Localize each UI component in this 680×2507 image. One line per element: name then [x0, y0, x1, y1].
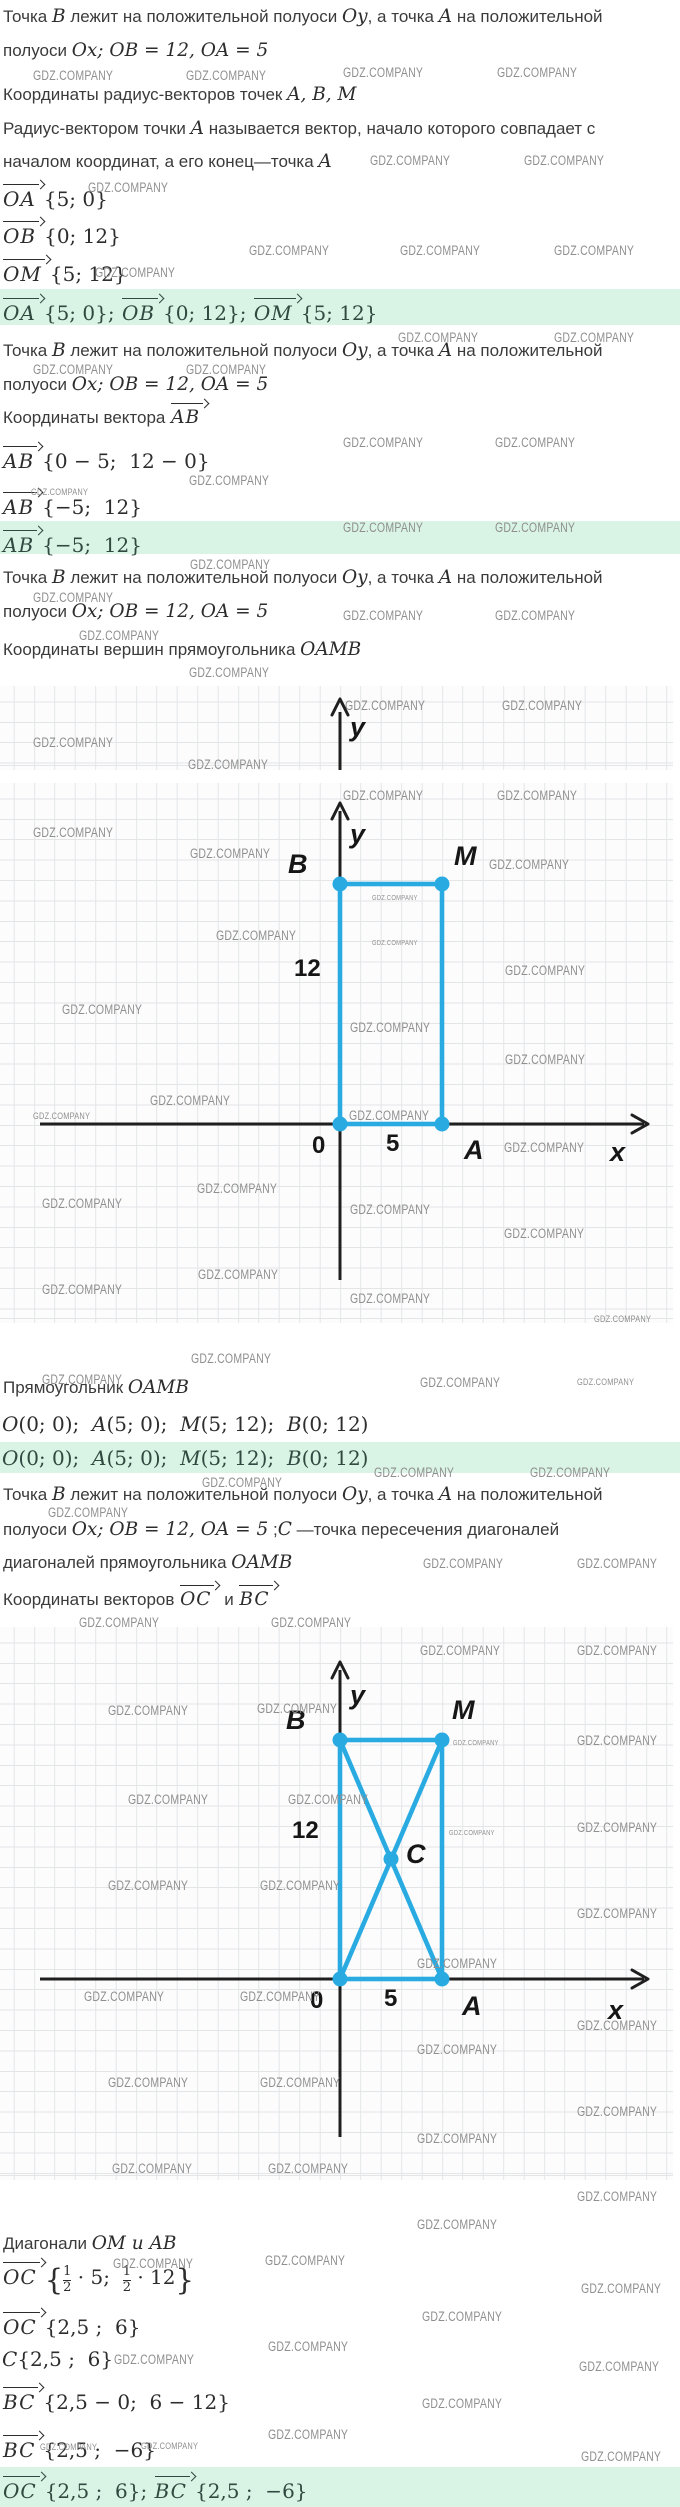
- math-segment: {0; 12};: [163, 301, 253, 325]
- watermark: GDZ.COMPANY: [577, 1733, 657, 1748]
- math-segment: A: [439, 1484, 452, 1505]
- section-heading-vector-ab: Координаты вектора AB: [3, 397, 208, 431]
- vector-arrow: AB: [2, 440, 42, 474]
- point-dot-b: [333, 877, 348, 892]
- point-label-b: B: [288, 849, 308, 880]
- point-dot-a: [435, 1972, 450, 1987]
- math-segment: M: [180, 1412, 200, 1436]
- math-segment: AB: [170, 407, 208, 428]
- vector-arrow: OC: [2, 2470, 45, 2504]
- watermark: GDZ.COMPANY: [504, 1226, 584, 1241]
- watermark: GDZ.COMPANY: [268, 2161, 348, 2176]
- watermark: GDZ.COMPANY: [141, 2441, 198, 2452]
- watermark: GDZ.COMPANY: [268, 2427, 348, 2442]
- math-segment: B: [52, 340, 66, 361]
- vector-arrow: BC: [154, 2470, 195, 2504]
- watermark: GDZ.COMPANY: [265, 2253, 345, 2268]
- text-segment: Радиус-вектором точки: [3, 119, 191, 138]
- denominator: 2: [123, 2280, 131, 2296]
- vector-arrow: OM: [2, 253, 50, 287]
- watermark: GDZ.COMPANY: [422, 2309, 502, 2324]
- watermark: GDZ.COMPANY: [505, 963, 585, 978]
- watermark: GDZ.COMPANY: [495, 435, 575, 450]
- math-segment: Ox; OB = 12, OA = 5: [72, 374, 269, 395]
- math-segment: Oy: [342, 6, 368, 27]
- watermark: GDZ.COMPANY: [577, 1820, 657, 1835]
- intro-line-1: Точка B лежит на положительной полуоси O…: [3, 1484, 603, 1506]
- text-segment: ;: [268, 1520, 277, 1539]
- watermark: GDZ.COMPANY: [453, 1738, 499, 1747]
- text-segment: Координаты вектора: [3, 408, 170, 427]
- watermark: GDZ.COMPANY: [240, 1989, 320, 2004]
- point-label-a: A: [464, 1135, 484, 1166]
- watermark: GDZ.COMPANY: [343, 65, 423, 80]
- text-segment: на положительной: [452, 568, 602, 587]
- math-segment: A, B, M: [287, 84, 356, 105]
- section-heading-rectangle-vertices: Координаты вершин прямоугольника OAMB: [3, 639, 361, 661]
- watermark: GDZ.COMPANY: [579, 2359, 659, 2374]
- watermark: GDZ.COMPANY: [417, 1956, 497, 1971]
- formula-oc-2: OC{2,5 ; 6}: [2, 2306, 141, 2340]
- formula-vertex-coords: O(0; 0); A(5; 0); M(5; 12); B(0; 12): [2, 1411, 368, 1437]
- math-segment: B: [52, 6, 66, 27]
- watermark: GDZ.COMPANY: [449, 1828, 495, 1837]
- watermark: GDZ.COMPANY: [33, 362, 113, 377]
- watermark: GDZ.COMPANY: [530, 1465, 610, 1480]
- watermark: GDZ.COMPANY: [577, 1906, 657, 1921]
- text-segment: называется вектор, начало которого совпа…: [204, 119, 595, 138]
- math-segment: (0; 12): [302, 1412, 369, 1436]
- watermark: GDZ.COMPANY: [343, 520, 423, 535]
- watermark: GDZ.COMPANY: [577, 1377, 634, 1388]
- text-segment: Точка: [3, 7, 52, 26]
- answer-formula: OC{2,5 ; 6}; BC{2,5 ; −6}: [0, 2467, 680, 2507]
- text-segment: Координаты радиус-векторов точек: [3, 85, 287, 104]
- watermark: GDZ.COMPANY: [108, 1703, 188, 1718]
- watermark: GDZ.COMPANY: [257, 1701, 337, 1716]
- math-segment: A: [92, 1446, 106, 1470]
- watermark: GDZ.COMPANY: [189, 665, 269, 680]
- solution-page: Точка B лежит на положительной полуоси O…: [0, 0, 680, 2507]
- watermark: GDZ.COMPANY: [260, 1878, 340, 1893]
- vector-arrow: BC: [2, 2381, 43, 2415]
- intro-line-1: Точка B лежит на положительной полуоси O…: [3, 567, 603, 589]
- vector-arrow: OC: [179, 1579, 219, 1613]
- definition-line-2: началом координат, а его конец—точка A: [3, 151, 332, 173]
- watermark: GDZ.COMPANY: [504, 1140, 584, 1155]
- answer-formula: OA{5; 0}; OB{0; 12}; OM{5; 12}: [0, 289, 680, 330]
- watermark: GDZ.COMPANY: [268, 2339, 348, 2354]
- intro-line-2: полуоси Ox; OB = 12, OA = 5: [3, 374, 268, 396]
- text-segment: Точка: [3, 568, 52, 587]
- intro-line-2: полуоси Ox; OB = 12, OA = 5: [3, 40, 268, 62]
- answer-highlight-4: OC{2,5 ; 6}; BC{2,5 ; −6}: [0, 2467, 680, 2507]
- diagonals-caption: Диагонали OM и AB: [3, 2233, 176, 2255]
- text-segment: полуоси: [3, 375, 72, 394]
- watermark: GDZ.COMPANY: [417, 2042, 497, 2057]
- watermark: GDZ.COMPANY: [350, 1020, 430, 1035]
- point-dot-c: [384, 1852, 399, 1867]
- watermark: GDZ.COMPANY: [191, 1351, 271, 1366]
- watermark: GDZ.COMPANY: [202, 1475, 282, 1490]
- math-segment: OAMB: [128, 1377, 189, 1398]
- watermark: GDZ.COMPANY: [108, 2075, 188, 2090]
- math-segment: {0; 12}: [44, 224, 121, 248]
- math-segment: {2,5 ; 6};: [45, 2479, 154, 2503]
- watermark: GDZ.COMPANY: [288, 1792, 368, 1807]
- watermark: GDZ.COMPANY: [370, 153, 450, 168]
- watermark: GDZ.COMPANY: [524, 153, 604, 168]
- watermark: GDZ.COMPANY: [372, 893, 418, 902]
- text-segment: полуоси: [3, 41, 72, 60]
- axis-label-x: x: [610, 1137, 625, 1168]
- vector-arrow: OA: [2, 178, 44, 212]
- math-segment: (0; 0);: [18, 1412, 92, 1436]
- watermark: GDZ.COMPANY: [198, 1267, 278, 1282]
- watermark: GDZ.COMPANY: [495, 520, 575, 535]
- watermark: GDZ.COMPANY: [577, 2189, 657, 2204]
- watermark: GDZ.COMPANY: [190, 557, 270, 572]
- answer-highlight-2: AB{−5; 12}: [0, 521, 680, 554]
- watermark: GDZ.COMPANY: [150, 1093, 230, 1108]
- math-segment: O: [2, 1412, 18, 1436]
- watermark: GDZ.COMPANY: [113, 2256, 193, 2271]
- definition-line-1: Радиус-вектором точки A называется векто…: [3, 118, 595, 140]
- vector-arrow: OB: [2, 215, 44, 249]
- watermark: GDZ.COMPANY: [422, 2396, 502, 2411]
- formula-ob: OB{0; 12}: [2, 215, 121, 249]
- vector-arrow: OA: [2, 292, 44, 326]
- watermark: GDZ.COMPANY: [489, 857, 569, 872]
- math-segment: (5; 12);: [201, 1412, 287, 1436]
- intro-line-3: диагоналей прямоугольника OAMB: [3, 1552, 292, 1574]
- point-label-c: C: [406, 1839, 426, 1870]
- math-segment: {5; 0};: [44, 301, 121, 325]
- watermark: GDZ.COMPANY: [502, 698, 582, 713]
- watermark: GDZ.COMPANY: [350, 1202, 430, 1217]
- watermark: GDZ.COMPANY: [186, 362, 266, 377]
- rectangle-oamb: [340, 884, 442, 1124]
- math-segment: A: [439, 6, 452, 27]
- math-segment: Ox; OB = 12, OA = 5: [72, 1519, 269, 1540]
- math-segment: BC: [238, 1589, 277, 1610]
- point-label-m: M: [454, 841, 477, 872]
- tick-label-5: 5: [386, 1130, 399, 1158]
- watermark: GDZ.COMPANY: [84, 1989, 164, 2004]
- watermark: GDZ.COMPANY: [42, 1282, 122, 1297]
- watermark: GDZ.COMPANY: [260, 2075, 340, 2090]
- watermark: GDZ.COMPANY: [112, 2161, 192, 2176]
- watermark: GDZ.COMPANY: [62, 1002, 142, 1017]
- text-segment: Точка: [3, 341, 52, 360]
- section-heading-radius-vectors: Координаты радиус-векторов точек A, B, M: [3, 84, 357, 106]
- watermark: GDZ.COMPANY: [42, 1196, 122, 1211]
- watermark: GDZ.COMPANY: [189, 473, 269, 488]
- watermark: GDZ.COMPANY: [420, 1375, 500, 1390]
- watermark: GDZ.COMPANY: [190, 846, 270, 861]
- text-segment: , а точка: [368, 568, 439, 587]
- watermark: GDZ.COMPANY: [186, 68, 266, 83]
- watermark: GDZ.COMPANY: [79, 628, 159, 643]
- vector-arrow: AB: [2, 524, 42, 558]
- text-segment: на положительной: [452, 1485, 602, 1504]
- math-segment: {: [45, 2263, 63, 2297]
- math-segment: (5; 12);: [201, 1446, 287, 1470]
- formula-bc-1: BC{2,5 − 0; 6 − 12}: [2, 2381, 230, 2415]
- point-label-a: A: [462, 1991, 482, 2022]
- watermark: GDZ.COMPANY: [577, 1556, 657, 1571]
- watermark: GDZ.COMPANY: [31, 487, 88, 498]
- watermark: GDZ.COMPANY: [495, 608, 575, 623]
- watermark: GDZ.COMPANY: [343, 608, 423, 623]
- math-segment: A: [191, 118, 204, 139]
- math-segment: A: [92, 1412, 106, 1436]
- watermark: GDZ.COMPANY: [420, 1643, 500, 1658]
- text-segment: , а точка: [368, 1485, 439, 1504]
- watermark: GDZ.COMPANY: [197, 1181, 277, 1196]
- math-segment: {2,5 ; 6}: [17, 2347, 113, 2371]
- watermark: GDZ.COMPANY: [497, 788, 577, 803]
- watermark: GDZ.COMPANY: [374, 1465, 454, 1480]
- watermark: GDZ.COMPANY: [343, 788, 423, 803]
- text-segment: Диагонали: [3, 2234, 92, 2253]
- watermark: GDZ.COMPANY: [188, 757, 268, 772]
- text-segment: —точка пересечения диагоналей: [292, 1520, 559, 1539]
- point-dot-o: [333, 1972, 348, 1987]
- math-segment: (0; 0);: [18, 1446, 92, 1470]
- text-segment: и: [219, 1590, 238, 1609]
- watermark: GDZ.COMPANY: [128, 1792, 208, 1807]
- watermark: GDZ.COMPANY: [417, 2217, 497, 2232]
- section-heading-vectors-oc-bc: Координаты векторов OC и BC: [3, 1579, 278, 1613]
- math-segment: Oy: [342, 567, 368, 588]
- math-segment: C: [278, 1519, 292, 1540]
- math-segment: OM и AB: [92, 2233, 177, 2254]
- math-segment: O: [2, 1446, 18, 1470]
- point-dot-a: [435, 1117, 450, 1132]
- watermark: GDZ.COMPANY: [343, 435, 423, 450]
- text-segment: диагоналей прямоугольника: [3, 1553, 231, 1572]
- math-segment: {2,5 ; −6}: [195, 2479, 308, 2503]
- point-dot-o: [333, 1117, 348, 1132]
- text-segment: Координаты векторов: [3, 1590, 179, 1609]
- text-segment: началом координат, а его конец—точка: [3, 152, 318, 171]
- watermark: GDZ.COMPANY: [79, 1615, 159, 1630]
- vector-arrow: BC: [238, 1579, 277, 1613]
- math-segment: {2,5 − 0; 6 − 12}: [43, 2390, 230, 2414]
- watermark: GDZ.COMPANY: [216, 928, 296, 943]
- watermark: GDZ.COMPANY: [423, 1556, 503, 1571]
- text-segment: , а точка: [368, 7, 439, 26]
- formula-ab-1: AB{0 − 5; 12 − 0}: [2, 440, 210, 474]
- watermark: GDZ.COMPANY: [497, 65, 577, 80]
- watermark: GDZ.COMPANY: [33, 68, 113, 83]
- math-segment: Ox; OB = 12, OA = 5: [72, 40, 269, 61]
- watermark: GDZ.COMPANY: [33, 735, 113, 750]
- math-segment: (0; 12): [302, 1446, 369, 1470]
- text-segment: Точка: [3, 1485, 52, 1504]
- math-segment: {−5; 12}: [42, 495, 142, 519]
- axis-label-y: y: [350, 712, 365, 743]
- answer-formula: AB{−5; 12}: [0, 521, 680, 562]
- math-segment: {2,5 ; 6}: [45, 2315, 141, 2339]
- watermark: GDZ.COMPANY: [114, 2352, 194, 2367]
- math-segment: M: [180, 1446, 200, 1470]
- watermark: GDZ.COMPANY: [372, 938, 418, 947]
- math-segment: C: [2, 2347, 17, 2371]
- intro-line-1: Точка B лежит на положительной полуоси O…: [3, 340, 603, 362]
- point-dot-m: [435, 1733, 450, 1748]
- watermark: GDZ.COMPANY: [581, 2281, 661, 2296]
- math-segment: (5; 0);: [106, 1412, 180, 1436]
- intro-line-2: полуоси Ox; OB = 12, OA = 5 ;C —точка пе…: [3, 1519, 559, 1541]
- watermark: GDZ.COMPANY: [505, 1052, 585, 1067]
- math-segment: {5; 12}: [301, 301, 378, 325]
- origin-label-0: 0: [312, 1132, 325, 1160]
- side-label-12: 12: [294, 955, 321, 983]
- watermark: GDZ.COMPANY: [33, 590, 113, 605]
- point-dot-b: [333, 1733, 348, 1748]
- answer-highlight-1: OA{5; 0}; OB{0; 12}; OM{5; 12}: [0, 289, 680, 325]
- text-segment: на положительной: [452, 7, 602, 26]
- watermark: GDZ.COMPANY: [88, 180, 168, 195]
- watermark: GDZ.COMPANY: [577, 2018, 657, 2033]
- watermark: GDZ.COMPANY: [554, 243, 634, 258]
- vector-arrow: OB: [121, 292, 163, 326]
- math-segment: OAMB: [300, 639, 361, 660]
- formula-c: C{2,5 ; 6}: [2, 2346, 113, 2372]
- tick-label-5: 5: [384, 1985, 397, 2013]
- axis-label-y: y: [350, 819, 365, 850]
- math-segment: Oy: [342, 1484, 368, 1505]
- math-segment: B: [287, 1412, 302, 1436]
- watermark: GDZ.COMPANY: [95, 265, 175, 280]
- watermark: GDZ.COMPANY: [249, 243, 329, 258]
- vector-arrow: OC: [2, 2256, 45, 2290]
- watermark: GDZ.COMPANY: [108, 1878, 188, 1893]
- watermark: GDZ.COMPANY: [271, 1615, 351, 1630]
- math-segment: (5; 0);: [106, 1446, 180, 1470]
- watermark: GDZ.COMPANY: [417, 2131, 497, 2146]
- watermark: GDZ.COMPANY: [554, 330, 634, 345]
- watermark: GDZ.COMPANY: [42, 1372, 122, 1387]
- math-segment: OAMB: [231, 1552, 292, 1573]
- math-segment: B: [52, 1484, 66, 1505]
- vector-arrow: BC: [2, 2429, 43, 2463]
- watermark: GDZ.COMPANY: [594, 1314, 651, 1325]
- text-segment: лежит на положительной полуоси: [66, 7, 342, 26]
- vector-arrow: AB: [170, 397, 208, 431]
- watermark: GDZ.COMPANY: [350, 1291, 430, 1306]
- watermark: GDZ.COMPANY: [33, 825, 113, 840]
- text-segment: лежит на положительной полуоси: [66, 341, 342, 360]
- watermark: GDZ.COMPANY: [40, 2442, 97, 2453]
- math-segment: B: [287, 1446, 302, 1470]
- intro-line-1: Точка B лежит на положительной полуоси O…: [3, 6, 603, 28]
- math-segment: B: [52, 567, 66, 588]
- side-label-12: 12: [292, 1817, 319, 1845]
- math-segment: {−5; 12}: [42, 533, 142, 557]
- vector-arrow: OM: [253, 292, 301, 326]
- math-segment: A: [318, 151, 331, 172]
- math-segment: OC: [179, 1589, 219, 1610]
- math-segment: {0 − 5; 12 − 0}: [42, 449, 209, 473]
- math-segment: A: [439, 567, 452, 588]
- watermark: GDZ.COMPANY: [349, 1108, 429, 1123]
- point-label-m: M: [452, 1695, 475, 1726]
- vector-arrow: OC: [2, 2306, 45, 2340]
- math-segment: Oy: [342, 340, 368, 361]
- watermark: GDZ.COMPANY: [400, 243, 480, 258]
- watermark: GDZ.COMPANY: [577, 1643, 657, 1658]
- point-dot-m: [435, 877, 450, 892]
- watermark: GDZ.COMPANY: [345, 698, 425, 713]
- axis-label-y: y: [350, 1680, 365, 1711]
- watermark: GDZ.COMPANY: [577, 2104, 657, 2119]
- watermark: GDZ.COMPANY: [581, 2449, 661, 2464]
- watermark: GDZ.COMPANY: [398, 330, 478, 345]
- watermark: GDZ.COMPANY: [48, 1505, 128, 1520]
- watermark: GDZ.COMPANY: [33, 1111, 90, 1122]
- text-segment: полуоси: [3, 1520, 72, 1539]
